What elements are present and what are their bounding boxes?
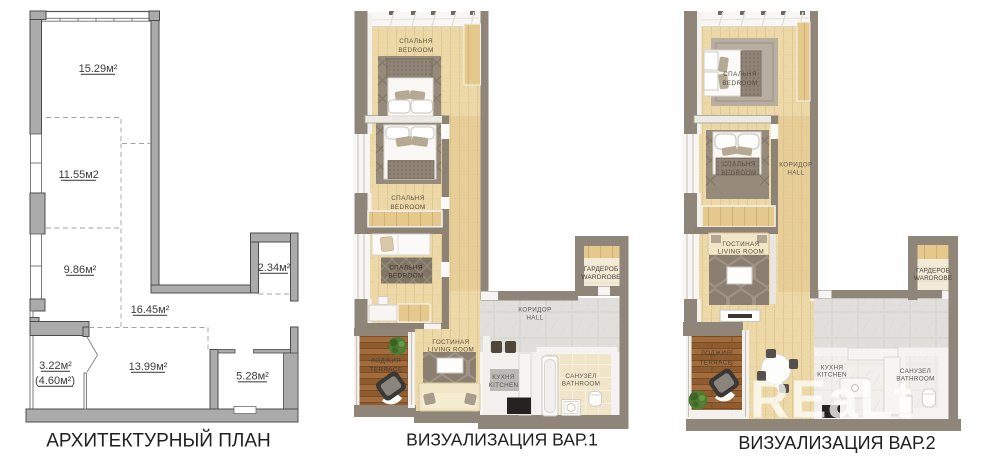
svg-text:ЛОДЖИЯ: ЛОДЖИЯ <box>371 358 401 365</box>
svg-text:LIVING ROOM: LIVING ROOM <box>718 249 764 256</box>
svg-text:BATHROOM: BATHROOM <box>562 381 600 388</box>
svg-text:BEDROOM: BEDROOM <box>722 80 757 87</box>
svg-text:3.22м²: 3.22м² <box>39 360 72 372</box>
svg-text:BEDROOM: BEDROOM <box>388 273 423 280</box>
svg-text:КОРИДОР: КОРИДОР <box>518 307 551 314</box>
svg-text:ВИЗУАЛИЗАЦИЯ ВАР.1: ВИЗУАЛИЗАЦИЯ ВАР.1 <box>406 430 598 450</box>
svg-text:REaLt: REaLt <box>750 370 914 430</box>
svg-text:13.99м²: 13.99м² <box>129 361 168 373</box>
svg-text:СПАЛЬНЯ: СПАЛЬНЯ <box>391 195 425 202</box>
svg-text:WARDROBE: WARDROBE <box>581 274 621 281</box>
svg-text:СПАЛЬНЯ: СПАЛЬНЯ <box>722 161 756 168</box>
svg-text:ЛОДЖИЯ: ЛОДЖИЯ <box>701 350 731 357</box>
svg-text:СПАЛЬНЯ: СПАЛЬНЯ <box>389 265 423 272</box>
svg-text:АРХИТЕКТУРНЫЙ ПЛАН: АРХИТЕКТУРНЫЙ ПЛАН <box>46 430 271 452</box>
svg-text:(4.60м²): (4.60м²) <box>35 375 75 387</box>
svg-text:САНУЗЕЛ: САНУЗЕЛ <box>565 373 596 380</box>
svg-text:5.28м²: 5.28м² <box>236 371 269 383</box>
svg-text:ВИЗУАЛИЗАЦИЯ ВАР.2: ВИЗУАЛИЗАЦИЯ ВАР.2 <box>738 433 935 453</box>
svg-text:TERRACE: TERRACE <box>700 360 733 367</box>
svg-text:СПАЛЬНЯ: СПАЛЬНЯ <box>399 38 433 45</box>
svg-text:ГАРДЕРОБ: ГАРДЕРОБ <box>584 266 619 273</box>
svg-text:15.29м²: 15.29м² <box>79 63 118 75</box>
svg-text:HALL: HALL <box>787 170 804 177</box>
svg-text:WARDROBE: WARDROBE <box>914 275 952 282</box>
svg-text:СПАЛЬНЯ: СПАЛЬНЯ <box>723 71 757 78</box>
svg-text:2.34м²: 2.34м² <box>258 262 291 274</box>
svg-text:TERRACE: TERRACE <box>370 367 403 374</box>
svg-text:KITCHEN: KITCHEN <box>489 382 519 389</box>
svg-text:ГАРДЕРОБ: ГАРДЕРОБ <box>916 268 950 275</box>
svg-text:BEDROOM: BEDROOM <box>721 170 756 177</box>
svg-text:11.55м2: 11.55м2 <box>59 169 99 181</box>
svg-text:HALL: HALL <box>526 315 543 322</box>
svg-text:BEDROOM: BEDROOM <box>390 204 425 211</box>
svg-text:9.86м²: 9.86м² <box>64 264 97 276</box>
svg-text:16.45м²: 16.45м² <box>131 304 170 316</box>
svg-text:КУХНЯ: КУХНЯ <box>492 374 515 381</box>
svg-text:ГОСТИНАЯ: ГОСТИНАЯ <box>722 241 759 248</box>
svg-text:ГОСТИНАЯ: ГОСТИНАЯ <box>432 339 469 346</box>
svg-text:КОРИДОР: КОРИДОР <box>779 162 812 169</box>
svg-text:BEDROOM: BEDROOM <box>398 47 433 54</box>
